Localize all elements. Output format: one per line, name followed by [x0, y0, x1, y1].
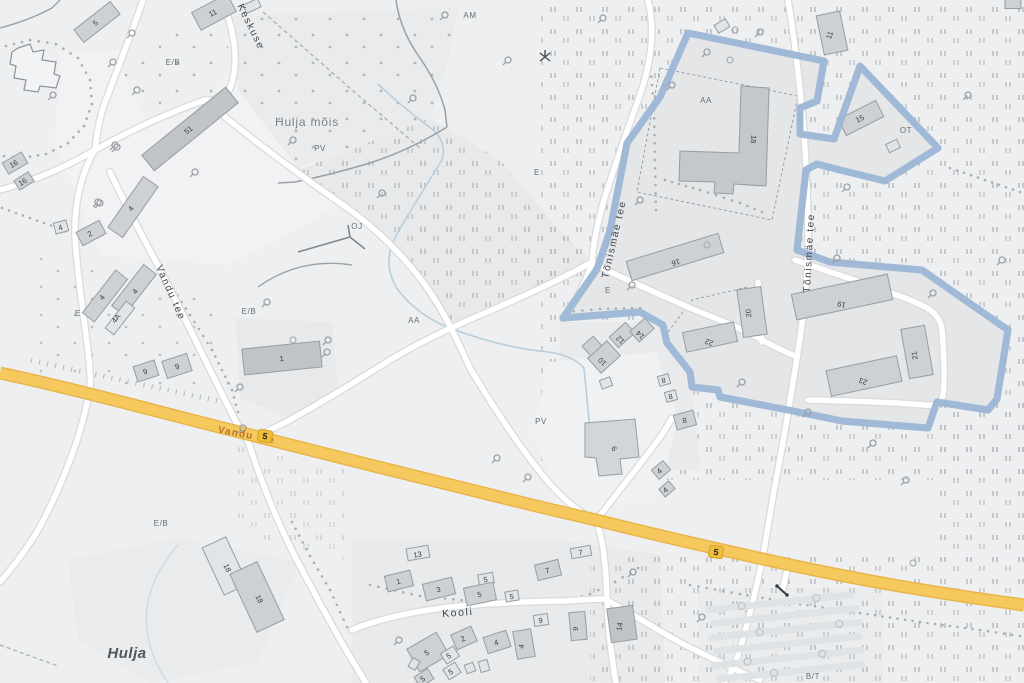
land-use-code-label: E/B	[242, 307, 257, 316]
land-use-code-label: AM	[463, 11, 476, 20]
building[interactable]	[1005, 0, 1021, 9]
land-use-code-label: PV	[535, 417, 547, 426]
land-use-code-label: OJ	[351, 222, 362, 231]
building[interactable]	[569, 611, 587, 640]
route-shield: 5	[257, 429, 273, 443]
land-use-code-label: OT	[900, 126, 912, 135]
settlement-name-label: Hulja	[107, 645, 146, 662]
building-number-label: 20	[744, 309, 754, 318]
land-use-code-label: E	[75, 309, 81, 318]
land-use-code-label: B/T	[806, 672, 820, 681]
land-use-code-label: E/B	[166, 58, 181, 67]
land-use-code-label: E	[605, 286, 611, 295]
building-number-label: 9	[571, 626, 580, 631]
land-use-code-label: E/B	[154, 519, 169, 528]
street-name-label: Kooli	[442, 606, 474, 620]
building-number-label: 18	[749, 135, 759, 144]
building-number-label: 14	[614, 622, 624, 632]
land-use-code-label: E	[534, 168, 540, 177]
route-shield: 5	[708, 545, 724, 559]
building-number-label: 21	[909, 351, 919, 361]
building-number-label: 13	[413, 549, 423, 559]
land-use-code-label: AA	[408, 316, 420, 325]
map-viewport[interactable]: 51151161644244A4991181813135557799142445…	[0, 0, 1024, 683]
estate-name-label: Hulja mõis	[275, 115, 339, 129]
land-use-code-label: PV	[314, 144, 326, 153]
land-use-code-label: AA	[700, 96, 712, 105]
map-canvas[interactable]: 51151161644244A4991181813135557799142445…	[0, 0, 1024, 683]
